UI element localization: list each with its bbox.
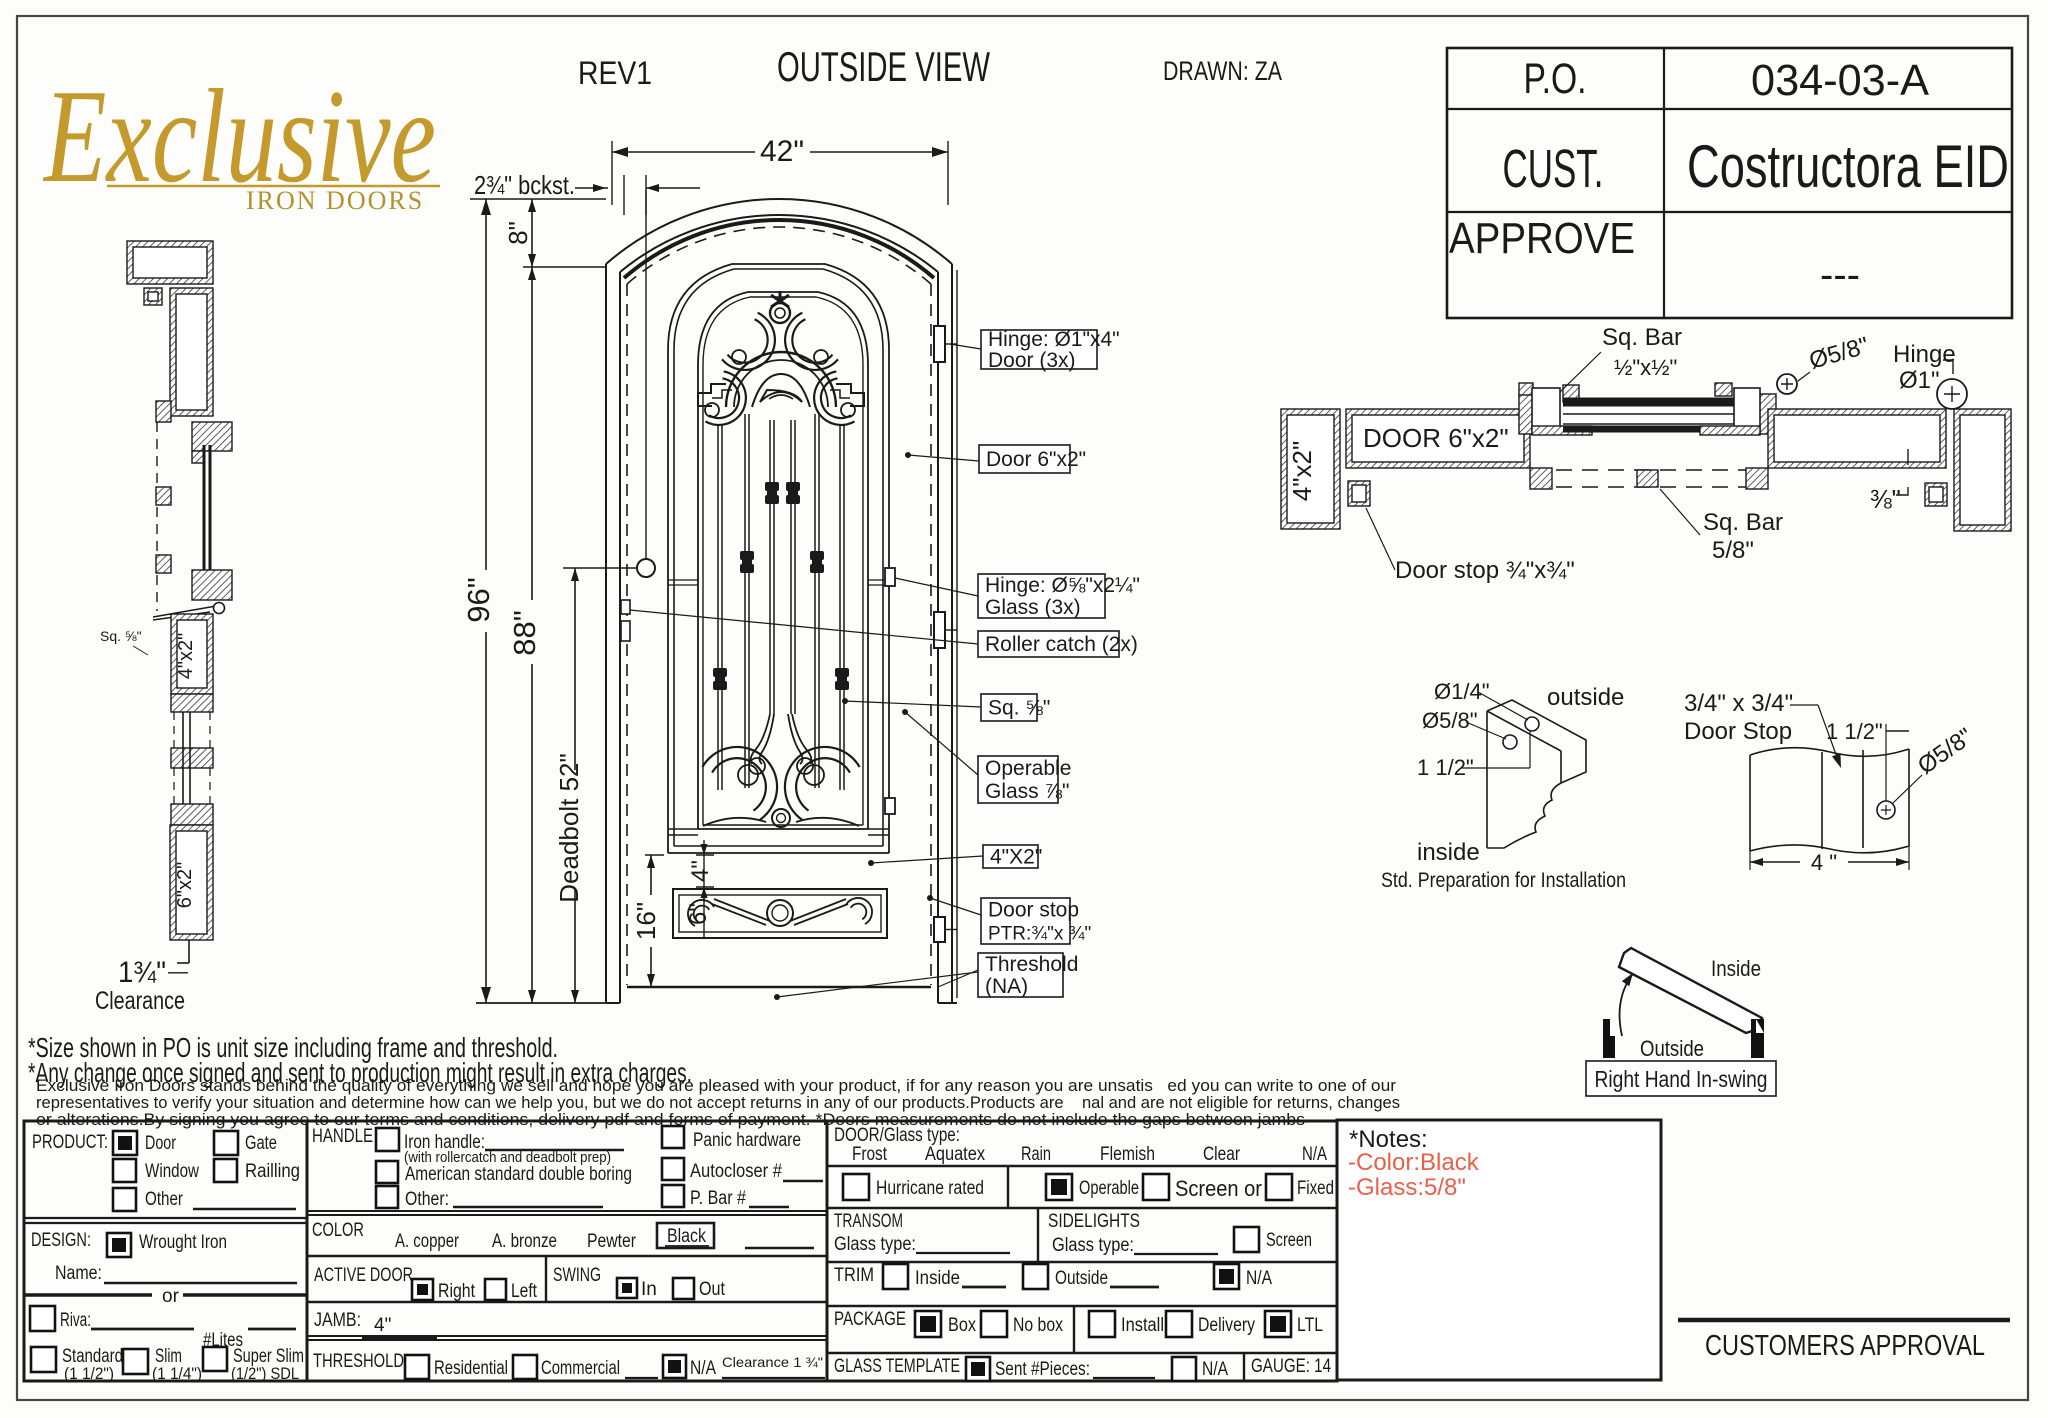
svg-text:Deadbolt 52": Deadbolt 52" [554,753,584,902]
svg-text:ACTIVE DOOR: ACTIVE DOOR [314,1265,413,1286]
svg-text:Aquatex: Aquatex [925,1144,985,1165]
svg-text:TRIM: TRIM [834,1265,874,1286]
svg-text:A. copper: A. copper [395,1231,460,1252]
svg-text:SIDELIGHTS: SIDELIGHTS [1048,1211,1140,1232]
svg-text:Sq. ⅝": Sq. ⅝" [100,628,142,644]
svg-text:16": 16" [631,902,661,940]
svg-text:Window: Window [145,1161,199,1182]
svg-text:4": 4" [374,1315,391,1336]
svg-text:Name:: Name: [55,1263,102,1284]
svg-text:American standard double borin: American standard double boring [405,1164,632,1185]
svg-text:6"x2": 6"x2" [174,862,196,908]
svg-text:(1 1/2"): (1 1/2") [64,1364,114,1383]
svg-text:Glass (3x): Glass (3x) [985,596,1081,619]
svg-text:⅜": ⅜" [1870,484,1901,514]
svg-text:Threshold: Threshold [985,953,1078,976]
svg-text:TRANSOM: TRANSOM [834,1211,903,1232]
svg-text:APPROVE: APPROVE [1449,214,1635,263]
svg-text:-Color:Black: -Color:Black [1348,1149,1480,1176]
svg-text:—: — [168,961,188,983]
svg-text:3/4" x 3/4": 3/4" x 3/4" [1684,690,1793,717]
svg-text:Glass type:: Glass type: [1052,1235,1134,1256]
svg-text:(1/2") SDL: (1/2") SDL [231,1364,299,1383]
svg-text:Ø1": Ø1" [1899,367,1940,394]
svg-text:Screen: Screen [1266,1230,1312,1251]
svg-text:CUST.: CUST. [1503,139,1604,199]
svg-text:42": 42" [760,135,804,168]
svg-text:Door: Door [145,1133,177,1154]
svg-text:Fixed: Fixed [1297,1178,1334,1199]
svg-text:---: --- [1820,253,1860,297]
svg-text:Sent #Pieces:: Sent #Pieces: [995,1359,1090,1380]
svg-text:Clearance: Clearance [95,987,185,1015]
svg-text:Inside: Inside [1711,956,1761,981]
svg-text:96": 96" [461,577,496,623]
svg-text:4": 4" [687,860,714,882]
svg-text:PRODUCT:: PRODUCT: [32,1132,108,1153]
svg-text:inside: inside [1417,839,1480,866]
svg-text:Hinge: Hinge [1893,341,1956,368]
svg-text:Hurricane rated: Hurricane rated [876,1178,984,1199]
svg-text:Commercial: Commercial [541,1358,620,1379]
svg-text:No box: No box [1013,1315,1063,1336]
svg-text:Left: Left [511,1281,538,1302]
svg-text:(NA): (NA) [985,975,1028,998]
svg-text:Door stop: Door stop [988,899,1079,922]
svg-text:4"x2": 4"x2" [1287,441,1317,501]
svg-text:(1 1/4"): (1 1/4") [152,1364,202,1383]
svg-text:Clear: Clear [1203,1144,1241,1165]
svg-text:Rain: Rain [1021,1144,1051,1165]
svg-text:Frost: Frost [852,1144,888,1165]
svg-text:Screen or: Screen or [1175,1176,1262,1201]
svg-text:GAUGE: 14: GAUGE: 14 [1251,1356,1331,1377]
svg-text:LTL: LTL [1297,1315,1323,1336]
svg-text:JAMB:: JAMB: [314,1310,361,1331]
svg-text:Box: Box [948,1315,976,1336]
svg-text:DRAWN: ZA: DRAWN: ZA [1163,56,1282,86]
svg-text:P. Bar #: P. Bar # [690,1188,746,1209]
svg-text:Outside: Outside [1055,1268,1108,1289]
svg-text:Wrought Iron: Wrought Iron [139,1232,227,1253]
svg-text:THRESHOLD: THRESHOLD [313,1351,404,1372]
svg-text:Autocloser #: Autocloser # [690,1161,782,1182]
svg-text:N/A: N/A [1302,1144,1327,1165]
svg-text:4"X2": 4"X2" [990,846,1042,869]
svg-text:Other: Other [145,1189,184,1210]
svg-text:Std. Preparation for Installat: Std. Preparation for Installation [1381,869,1626,892]
svg-text:Hinge: Ø⅝"x2¼": Hinge: Ø⅝"x2¼" [985,574,1140,597]
svg-text:PTR:¾"x ¾": PTR:¾"x ¾" [988,924,1091,945]
svg-text:Ø5/8": Ø5/8" [1422,708,1478,733]
svg-text:2¾" bckst.: 2¾" bckst. [474,170,575,200]
svg-text:Operable: Operable [985,757,1071,780]
svg-text:Right Hand In-swing: Right Hand In-swing [1595,1066,1768,1092]
svg-text:CUSTOMERS APPROVAL: CUSTOMERS APPROVAL [1705,1330,1985,1362]
svg-text:Panic hardware: Panic hardware [693,1130,801,1151]
svg-text:4 ": 4 " [1811,850,1837,875]
svg-text:Door 6"x2": Door 6"x2" [986,448,1086,471]
svg-text:Sq. ⅝": Sq. ⅝" [988,697,1050,720]
svg-text:8": 8" [503,221,533,245]
svg-text:Other:: Other: [405,1189,449,1210]
svg-text:Railling: Railling [245,1161,300,1182]
svg-text:Operable: Operable [1079,1178,1139,1199]
svg-text:Install: Install [1121,1315,1164,1336]
svg-text:½"x½": ½"x½" [1614,355,1677,380]
svg-text:Inside: Inside [915,1268,960,1289]
svg-text:4"x2": 4"x2" [175,633,197,679]
svg-text:N/A: N/A [690,1358,716,1379]
svg-text:1 1/2": 1 1/2" [1826,719,1883,744]
svg-text:Delivery: Delivery [1198,1315,1255,1336]
svg-text:Riva:: Riva: [60,1310,91,1331]
svg-text:5/8": 5/8" [1712,537,1754,564]
svg-text:Pewter: Pewter [587,1231,637,1252]
svg-text:N/A: N/A [1202,1359,1228,1380]
svg-text:Door stop ¾"x¾": Door stop ¾"x¾" [1395,557,1575,584]
svg-text:SWING: SWING [553,1265,601,1286]
svg-text:Door Stop: Door Stop [1684,718,1792,745]
svg-text:OUTSIDE VIEW: OUTSIDE VIEW [777,43,990,90]
svg-text:6": 6" [685,903,712,925]
svg-text:outside: outside [1547,684,1624,711]
svg-text:Black: Black [667,1226,706,1247]
svg-text:Residential: Residential [434,1358,508,1379]
svg-text:Gate: Gate [245,1133,277,1154]
svg-text:N/A: N/A [1246,1268,1272,1289]
svg-text:Ø1/4": Ø1/4" [1434,679,1490,704]
svg-text:IRON DOORS: IRON DOORS [246,186,424,215]
svg-text:Hinge: Ø1"x4": Hinge: Ø1"x4" [988,328,1120,351]
svg-text:Out: Out [699,1279,726,1300]
svg-text:1¾": 1¾" [118,956,166,989]
svg-text:Glass ⅞": Glass ⅞" [985,780,1069,803]
svg-text:Right: Right [438,1281,476,1302]
svg-text:In: In [641,1279,657,1300]
svg-text:Sq. Bar: Sq. Bar [1703,509,1783,536]
svg-text:DESIGN:: DESIGN: [31,1230,91,1251]
svg-text:Glass type:: Glass type: [834,1234,916,1255]
svg-text:HANDLE: HANDLE [312,1126,373,1147]
svg-text:DOOR/Glass type:: DOOR/Glass type: [834,1125,960,1146]
svg-text:GLASS TEMPLATE: GLASS TEMPLATE [834,1356,960,1377]
svg-text:Roller catch (2x): Roller catch (2x) [985,633,1138,656]
svg-text:A. bronze: A. bronze [492,1231,557,1252]
svg-text:Sq. Bar: Sq. Bar [1602,324,1682,351]
svg-text:034-03-A: 034-03-A [1751,56,1930,105]
svg-text:Costructora EID: Costructora EID [1687,133,2009,200]
svg-text:COLOR: COLOR [312,1220,364,1241]
svg-text:Door (3x): Door (3x) [988,349,1076,372]
svg-text:DOOR 6"x2": DOOR 6"x2" [1363,423,1509,453]
svg-text:REV1: REV1 [578,55,652,91]
svg-text:or: or [162,1286,180,1307]
svg-text:PACKAGE: PACKAGE [834,1309,906,1330]
svg-text:-Glass:5/8": -Glass:5/8" [1348,1174,1466,1201]
svg-text:88": 88" [507,610,542,656]
svg-text:P.O.: P.O. [1524,55,1587,103]
svg-text:Clearance 1 ¾": Clearance 1 ¾" [722,1354,823,1370]
svg-text:Flemish: Flemish [1100,1144,1155,1165]
svg-text:Outside: Outside [1640,1036,1704,1061]
